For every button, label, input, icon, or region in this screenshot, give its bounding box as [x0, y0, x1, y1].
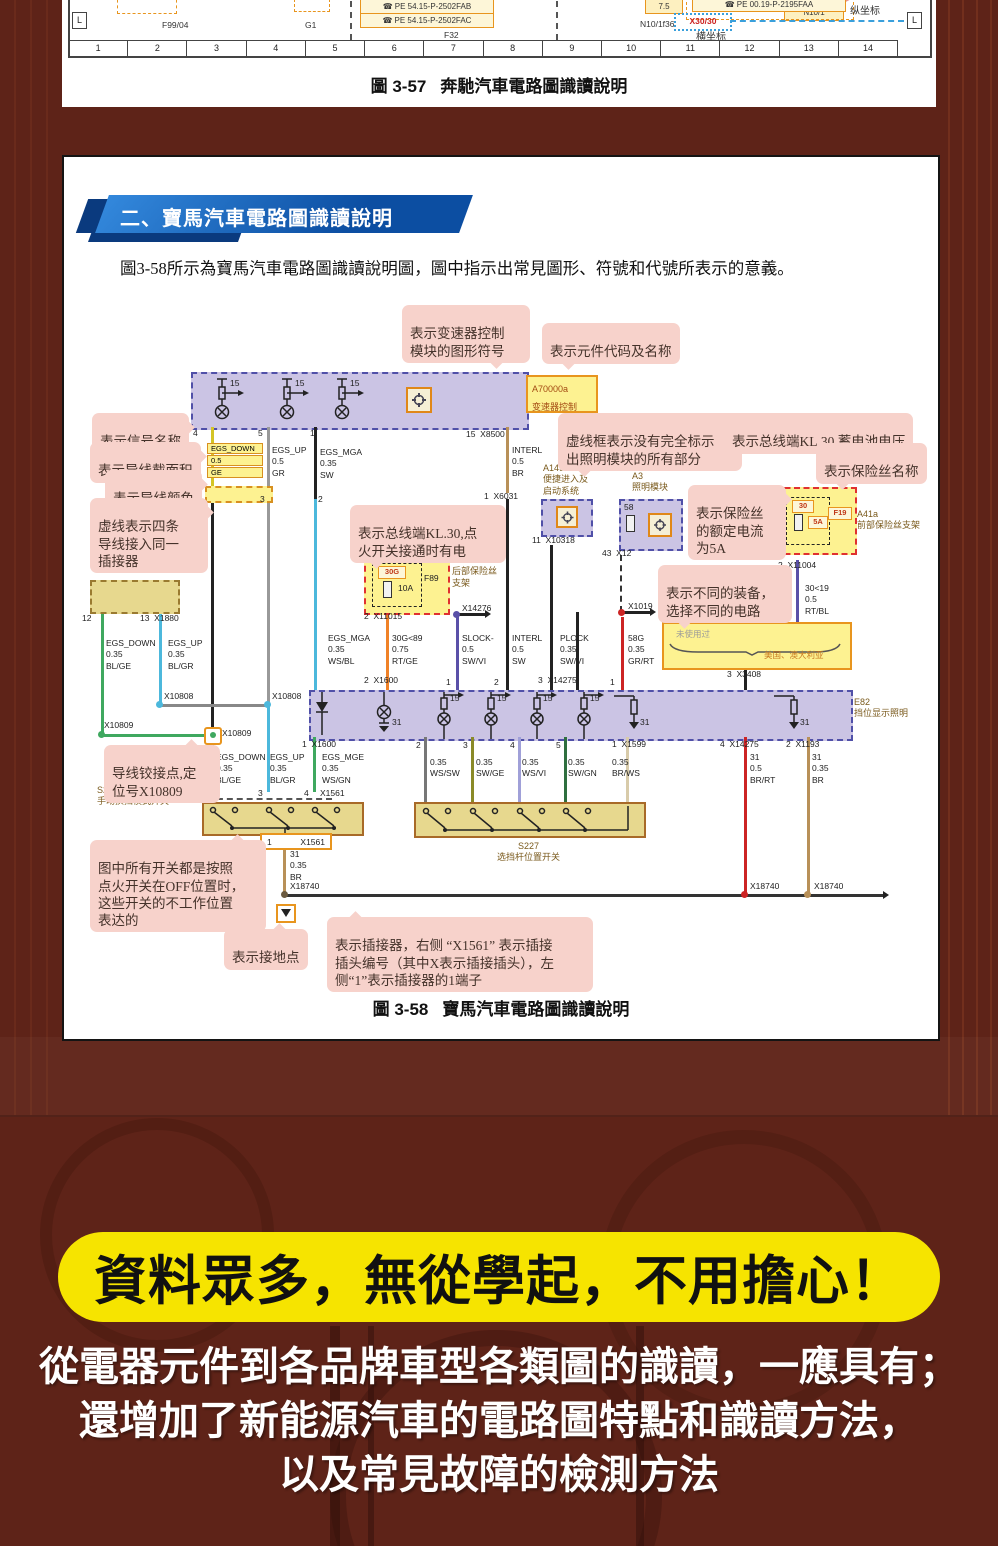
ruler-cell: 3 — [187, 41, 246, 57]
ruler-cell: 12 — [720, 41, 779, 57]
pin-label: 4 — [193, 428, 198, 438]
component-label: N10/1f36 — [640, 19, 675, 29]
junction-dot — [804, 891, 811, 898]
figure-3-58-panel: 二、寶馬汽車電路圖識讀說明 圖3-58所示為寶馬汽車電路圖識讀說明圖，圖中指示出… — [62, 155, 940, 1041]
wire-color-box: GE — [207, 467, 263, 478]
phone-icon: ☎ — [383, 16, 393, 25]
wire — [744, 737, 747, 895]
connector-dash-line — [207, 798, 332, 800]
pe-ref-text: PE 54.15-P-2502FAB — [395, 2, 472, 11]
wire-label: 0.35 SW/GE — [476, 757, 504, 780]
pin-label: 15 — [543, 693, 552, 703]
connector-pin: 1 — [267, 837, 272, 847]
pin-label: 1 X1600 — [302, 739, 336, 749]
lamp-fuse-symbols — [193, 374, 527, 428]
pin-label: 11 X10318 — [532, 535, 575, 545]
background-band — [0, 1037, 998, 1117]
wire-label: EGS_UP 0.5 GR — [272, 445, 307, 479]
wire-label: 31 0.35 BR — [290, 849, 307, 883]
ruler-cell: 4 — [247, 41, 306, 57]
signal-name-box: EGS_DOWN — [207, 443, 263, 454]
arrow-icon — [883, 891, 889, 899]
pe-document-ref: ☎ PE 54.15-P-2502FAB — [360, 0, 494, 14]
promo-page: L L F99/04 G1 ☎ PE 54.15-P-2502FAB ☎ PE … — [0, 0, 998, 1546]
wire-section-box: 0.5 — [207, 455, 263, 466]
pin-label: X14276 — [462, 603, 491, 613]
background-decor-right-traces — [936, 0, 998, 1115]
component-label-a3: A3 照明模块 — [632, 471, 668, 494]
pin-label: 4 — [304, 788, 309, 798]
wire — [624, 611, 650, 614]
callout-text: 表示接地点 — [232, 950, 300, 965]
grid-letter-right: L — [907, 12, 922, 29]
section-title: 二、寶馬汽車電路圖識讀說明 — [120, 202, 393, 231]
component-label: F99/04 — [162, 20, 188, 30]
pin-label: X18740 — [290, 881, 319, 891]
grid-ruler: 1 2 3 4 5 6 7 8 9 10 11 12 13 14 — [68, 40, 898, 58]
callout-kl30-ignition: 表示总线端KL.30,点 火开关接通时有电 — [350, 505, 506, 563]
promo-description: 從電器元件到各品牌車型各類圖的識讀，一應具有； 還增加了新能源汽車的電路圖特點和… — [0, 1340, 998, 1502]
callout-fuse-name: 表示保险丝名称 — [816, 443, 927, 484]
component-label-a41a: A41a 前部保险丝支架 — [857, 509, 920, 532]
wire — [621, 617, 624, 690]
pe-ref-text: PE 00.19-P-2195FAA — [737, 0, 814, 9]
pin-label: 1 — [446, 677, 451, 687]
a72-box — [90, 580, 180, 614]
gear-icon — [556, 506, 578, 528]
pin-label: 4 X14275 — [720, 739, 759, 749]
callout-diff-equipment: 表示不同的装备， 选择不同的电路 — [658, 565, 792, 623]
y-axis-label: 纵坐标 — [850, 2, 880, 17]
pin-label: 3 — [260, 494, 265, 504]
wire — [159, 610, 162, 705]
ground-symbol-box — [276, 904, 296, 923]
wire-label: EGS_UP 0.35 BL/GR — [270, 752, 305, 786]
pin-label: 2 X1600 — [364, 675, 398, 685]
figure-3-58-caption: 圖 3-58寶馬汽車電路圖識讀說明 — [64, 995, 938, 1020]
wire-label: 0.35 BR/WS — [612, 757, 640, 780]
pin-label: 3 X14275 — [538, 675, 577, 685]
component-label-a70000a: A70000a 变速器控制 — [532, 384, 577, 412]
variant-label-regions: 美国、澳大利亚 — [764, 649, 824, 661]
callout-wire-joint: 导线铰接点,定 位号X10809 — [104, 745, 220, 803]
dashed-zone-line — [556, 0, 558, 40]
wire-label: EGS_DOWN 0.35 BL/GE — [106, 638, 156, 672]
pin-label: 2 — [318, 494, 323, 504]
intro-paragraph: 圖3-58所示為寶馬汽車電路圖識讀說明圖，圖中指示出常見圖形、符號和代號所表示的… — [120, 257, 895, 282]
fuse-symbol — [794, 514, 803, 531]
wire-label: 0.35 WS/SW — [430, 757, 460, 780]
wire-label: INTERL 0.5 SW — [512, 633, 542, 667]
component-label-s227: S227 选挡杆位置开关 — [497, 841, 560, 864]
wire — [314, 499, 317, 690]
callout-text: 图中所有开关都是按照 点火开关在OFF位置时， 这些开关的不工作位置 表达的 — [98, 861, 244, 928]
module-transmission-control — [191, 372, 529, 430]
promo-line: 從電器元件到各品牌車型各類圖的識讀，一應具有； — [0, 1340, 998, 1394]
wire-label: INTERL 0.5 BR — [512, 445, 542, 479]
callout-text: 表示总线端KL.30,点 火开关接通时有电 — [358, 526, 477, 558]
highlighted-wire-labels: EGS_DOWN 0.5 GE — [207, 443, 263, 478]
ruler-cell: 1 — [69, 41, 128, 57]
ruler-cell: 7 — [424, 41, 483, 57]
pin-label: X18740 — [750, 881, 779, 891]
promo-headline-box: 資料眾多，無從學起，不用擔心！ — [58, 1232, 940, 1322]
fuse-symbol — [383, 581, 392, 598]
pin-label: 5 — [556, 740, 561, 750]
module-a3: 58 — [619, 499, 683, 551]
wire — [564, 737, 567, 802]
fuse-value-box: 7.5 — [645, 0, 683, 14]
connector-x1561-box: 1 X1561 — [260, 833, 332, 850]
wire-label: EGS_UP 0.35 BL/GR — [168, 638, 203, 672]
wire — [267, 427, 270, 705]
junction-dot — [618, 609, 625, 616]
ruler-cell: 6 — [365, 41, 424, 57]
transmission-gear-icon — [406, 387, 432, 413]
callout-pointer — [185, 739, 198, 752]
component-box-cut — [117, 0, 177, 14]
ruler-cell: 5 — [306, 41, 365, 57]
wire-label: EGS_MGA 0.35 WS/BL — [328, 633, 370, 667]
pin-label: 2 X1193 — [786, 739, 819, 749]
component-code-box: A70000a 变速器控制 — [526, 375, 598, 413]
kl30g-tag: 30G — [378, 566, 406, 579]
kl30-tag: 30 — [792, 500, 814, 513]
junction-dot — [156, 701, 163, 708]
ruler-cell: 14 — [839, 41, 897, 57]
fuse-rating-label: 10A — [398, 583, 413, 593]
pin-label: 2 X11015 — [364, 611, 402, 621]
fuse-symbol — [626, 515, 635, 532]
wire — [424, 737, 427, 802]
dashed-zone-line — [350, 0, 352, 40]
pin-label: X1561 — [320, 788, 345, 798]
component-label: F32 — [444, 30, 459, 40]
junction-dot — [98, 731, 105, 738]
pin-label: X10809 — [222, 728, 251, 738]
ruler-cell: 2 — [128, 41, 187, 57]
pin-label: 3 X3408 — [727, 669, 761, 679]
wire — [211, 499, 214, 735]
phone-icon: ☎ — [383, 2, 393, 11]
wire-label: 0.35 SW/GN — [568, 757, 597, 780]
pin-label: X10808 — [272, 691, 301, 701]
callout-switch-position: 图中所有开关都是按照 点火开关在OFF位置时， 这些开关的不工作位置 表达的 — [90, 840, 266, 932]
variant-label-unused: 未使用过 — [676, 628, 710, 640]
wire-dashed — [620, 555, 622, 612]
gear-icon — [648, 513, 672, 537]
pin-label: 15 — [295, 378, 304, 388]
phone-icon: ☎ — [725, 0, 735, 9]
switch-symbols — [416, 804, 644, 836]
figure-title: 奔馳汽車電路圖識讀說明 — [440, 77, 627, 96]
wire — [459, 613, 485, 616]
component-box-cut — [294, 0, 330, 12]
wire — [471, 737, 474, 802]
wire-label: 30G<89 0.75 RT/GE — [392, 633, 423, 667]
pin-label: 2 — [494, 677, 499, 687]
callout-same-connector: 虚线表示四条 导线接入同一 插接器 — [90, 498, 208, 573]
wire-label: EGS_MGA 0.35 SW — [320, 447, 362, 481]
component-label-e82: E82 挡位显示照明 — [854, 697, 908, 720]
module-shift-display — [309, 690, 853, 741]
pin-label: 3 — [463, 740, 468, 750]
switch-box-s224 — [202, 802, 364, 836]
pin-label: X1019 — [628, 601, 653, 611]
module-a149a — [541, 499, 593, 537]
wire-label: PLOCK 0.35 SW/VI — [560, 633, 589, 667]
callout-text: 表示保险丝 的额定电流 为5A — [696, 506, 764, 556]
pin-label: 31 — [640, 717, 649, 727]
callout-text: 导线铰接点,定 位号X10809 — [112, 766, 196, 798]
pin-label: 5 — [258, 428, 263, 438]
pin-label: 15 — [590, 693, 599, 703]
pe-ref-text: PE 54.15-P-2502FAC — [395, 16, 472, 25]
junction-dot — [281, 891, 288, 898]
fuse-rating-tag: 5A — [808, 516, 828, 529]
promo-line: 還增加了新能源汽車的電路圖特點和識讀方法， — [0, 1394, 998, 1448]
ruler-cell: 10 — [602, 41, 661, 57]
callout-text: 虚线表示四条 导线接入同一 插接器 — [98, 519, 179, 569]
wire — [456, 615, 459, 690]
background-decor-left-traces — [0, 0, 62, 1115]
pin-label: 1 X6031 — [484, 491, 518, 501]
figure-3-57-panel: L L F99/04 G1 ☎ PE 54.15-P-2502FAB ☎ PE … — [62, 0, 936, 107]
figure-number: 圖 3-58 — [373, 1000, 429, 1019]
pin-label: 31 — [800, 717, 809, 727]
pin-label: 15 — [230, 378, 239, 388]
wire — [159, 704, 269, 707]
wire — [506, 427, 509, 493]
pin-label: X10809 — [104, 720, 133, 730]
pin-label: 1 X1599 — [612, 739, 646, 749]
wire — [101, 610, 104, 735]
ruler-cell: 8 — [484, 41, 543, 57]
callout-dashed-frame: 虚线框表示没有完全标示 出照明模块的所有部分 — [558, 413, 742, 471]
callout-pointer — [194, 450, 207, 463]
switch-box-s227 — [414, 802, 646, 838]
figure-number: 圖 3-57 — [371, 77, 427, 96]
callout-pointer — [349, 911, 362, 924]
pin-label: 43 X12 — [602, 548, 631, 558]
callout-text: 表示保险丝名称 — [824, 464, 919, 479]
callout-text: 表示插接器，右侧 “X1561” 表示插接 插头编号（其中X表示插接插头），左 … — [335, 938, 554, 988]
pe-document-ref: ☎ PE 00.19-P-2195FAA — [692, 0, 846, 12]
wire-label: 31 0.5 BR/RT — [750, 752, 775, 786]
wire-label: EGS_DOWN 0.35 BL/GE — [216, 752, 266, 786]
junction-dot — [453, 611, 460, 618]
pin-label: X18740 — [814, 881, 843, 891]
wire-label: 30<19 0.5 RT/BL — [805, 583, 829, 617]
pin-label: 1 — [310, 428, 315, 438]
wire — [550, 545, 553, 690]
switch-symbols — [204, 804, 362, 834]
wire-label: 0.35 WS/VI — [522, 757, 546, 780]
pin-label: 2 — [416, 740, 421, 750]
module2-symbols — [311, 692, 851, 739]
wire — [518, 737, 521, 802]
pin-label: 31 — [392, 717, 401, 727]
wire-label: EGS_MGE 0.35 WS/GN — [322, 752, 364, 786]
wire-label: SLOCK- 0.5 SW/VI — [462, 633, 494, 667]
wire — [283, 846, 286, 895]
pin-label: 15 X8500 — [466, 429, 505, 439]
pin-label: 15 — [497, 693, 506, 703]
pe-document-ref: ☎ PE 54.15-P-2502FAC — [360, 13, 494, 28]
pin-label: 15 — [350, 378, 359, 388]
pin-label: 15 — [450, 693, 459, 703]
promo-line: 以及常見故障的檢測方法 — [0, 1448, 998, 1502]
junction-dot — [741, 891, 748, 898]
wire-label: 58G 0.35 GR/RT — [628, 633, 654, 667]
ruler-cell: 11 — [661, 41, 720, 57]
figure-title: 寶馬汽車電路圖識讀說明 — [442, 1000, 629, 1019]
ground-bus-wire — [283, 894, 883, 897]
x3030-text: X30/30 — [690, 16, 717, 26]
callout-text: 虚线框表示没有完全标示 出照明模块的所有部分 — [566, 434, 715, 466]
wire-joint-box — [204, 727, 222, 745]
callout-fuse-rating: 表示保险丝 的额定电流 为5A — [688, 485, 786, 560]
connector-name: X1561 — [300, 837, 325, 847]
ground-icon — [280, 907, 292, 918]
fuse-name-label: F89 — [424, 573, 439, 583]
promo-headline: 資料眾多，無從學起，不用擔心！ — [94, 1239, 904, 1315]
figure-3-57-caption: 圖 3-57奔馳汽車電路圖識讀說明 — [62, 72, 936, 97]
callout-gearbox-symbol: 表示变速器控制 模块的图形符号 — [402, 305, 530, 363]
grid-letter-left: L — [72, 12, 87, 29]
fuse-name-tag: F19 — [828, 507, 852, 520]
pin-label: 58 — [624, 502, 633, 512]
component-label: G1 — [305, 20, 316, 30]
ruler-cell: 9 — [543, 41, 602, 57]
callout-ground-point: 表示接地点 — [224, 929, 308, 970]
pin-label: X10808 — [164, 691, 193, 701]
pin-label: 3 — [258, 788, 263, 798]
callout-text: 表示变速器控制 模块的图形符号 — [410, 326, 505, 358]
callout-connector-explain: 表示插接器，右侧 “X1561” 表示插接 插头编号（其中X表示插接插头），左 … — [327, 917, 593, 992]
wire-label: 31 0.35 BR — [812, 752, 829, 786]
callout-pointer — [273, 923, 286, 936]
ruler-cell: 13 — [780, 41, 839, 57]
callout-component-code: 表示元件代码及名称 — [542, 323, 680, 364]
pin-label: 1 — [610, 677, 615, 687]
junction-dot — [264, 701, 271, 708]
callout-text: 表示不同的装备， 选择不同的电路 — [666, 586, 774, 618]
wire — [101, 734, 213, 737]
wire — [506, 499, 509, 690]
pin-label: 13 X1880 — [140, 613, 179, 623]
pin-label: 12 — [82, 613, 91, 623]
wire — [807, 737, 810, 895]
pin-label: 4 — [510, 740, 515, 750]
coordinate-dash-line — [730, 20, 904, 22]
section-banner: 二、寶馬汽車電路圖識讀說明 — [94, 195, 466, 233]
